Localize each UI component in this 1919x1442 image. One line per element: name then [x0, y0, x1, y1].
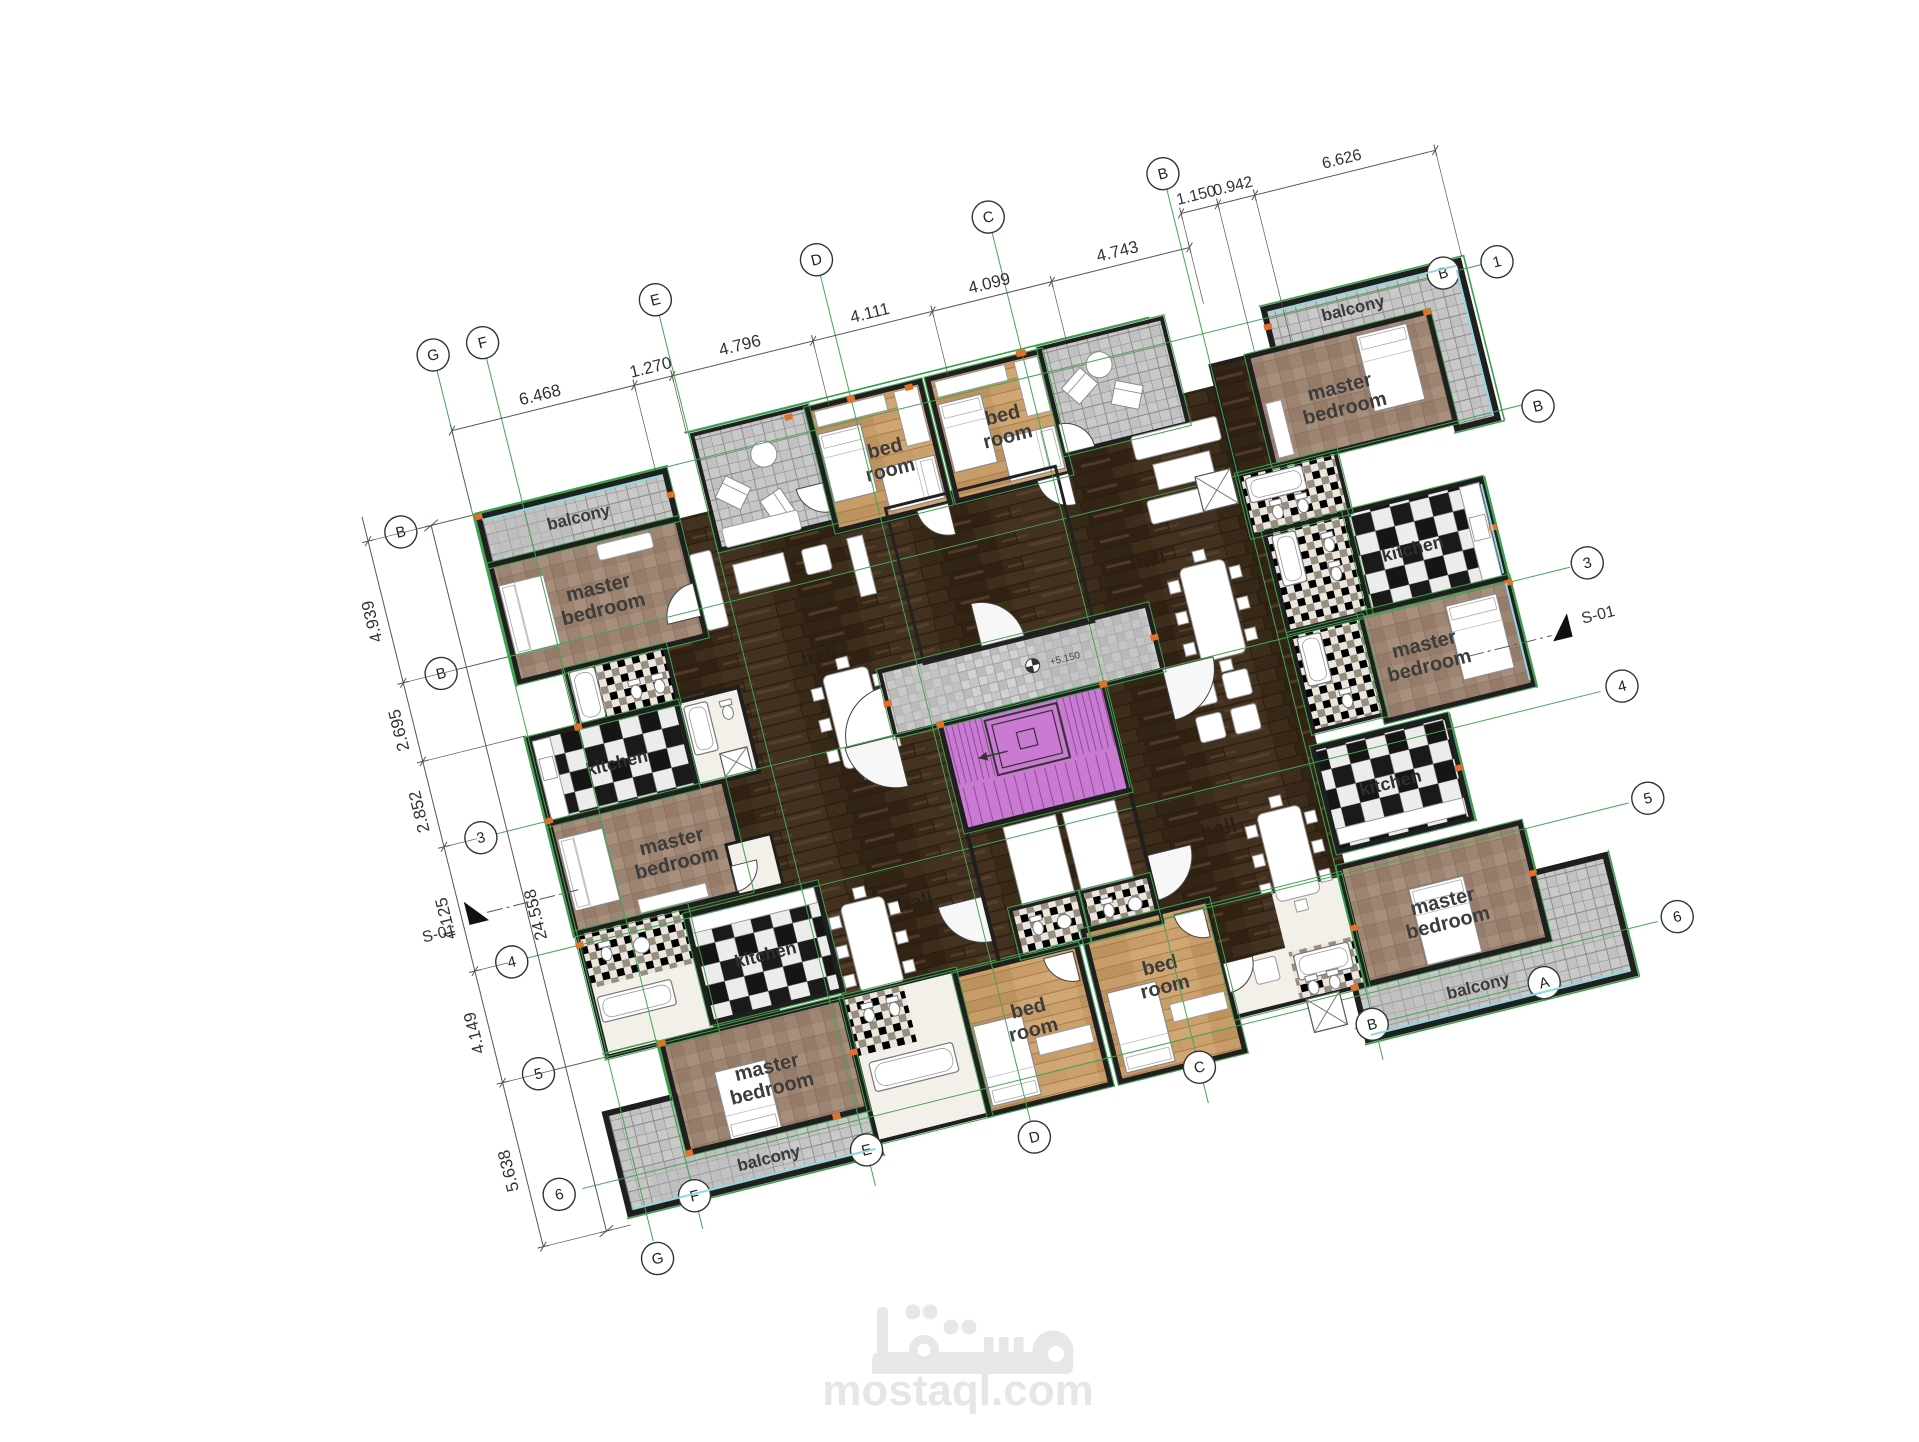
svg-text:mostaql.com: mostaql.com: [822, 1366, 1093, 1415]
